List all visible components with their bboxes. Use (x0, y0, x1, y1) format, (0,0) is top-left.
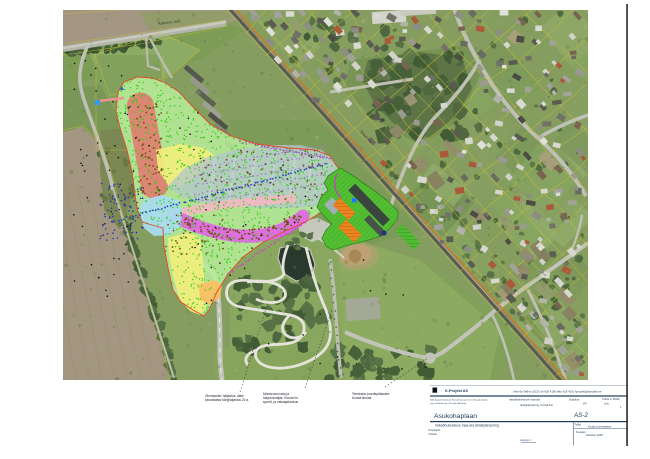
svg-text:AS-2: AS-2 (573, 412, 588, 419)
svg-text:Ahtri 6a Tallinn 10151 tel 62: Ahtri 6a Tallinn 10151 tel 626 4100 faks… (513, 390, 602, 394)
svg-text:Vabaõhukeskuse maa-ala detailp: Vabaõhukeskuse maa-ala detailplaneering (435, 424, 499, 428)
svg-text:Staadium: Staadium (569, 399, 580, 402)
svg-text:DP: DP (583, 403, 587, 406)
svg-text:K-Projekt AS: K-Projekt AS (445, 389, 469, 393)
svg-text:Tellija: Tellija (575, 424, 582, 427)
svg-text:Kunda Linnavalitsus: Kunda Linnavalitsus (588, 425, 612, 429)
svg-text:Vabaõhukeskuse maa-ala: Vabaõhukeskuse maa-ala (509, 398, 540, 402)
svg-text:Asukohaplaan: Asukohaplaan (434, 413, 477, 420)
svg-text:spordi- ja vabaajakeskus: spordi- ja vabaajakeskus (263, 400, 298, 404)
svg-text:Tööde nr 08126: Tööde nr 08126 (602, 398, 620, 401)
svg-text:Leping nr: Leping nr (520, 438, 531, 442)
svg-text:detailplaneering, Kunda linn: detailplaneering, Kunda linn (520, 403, 554, 407)
svg-text:Projektijuht: Projektijuht (429, 429, 441, 432)
svg-text:Leht: Leht (604, 403, 609, 406)
svg-text:kavandatav kõrghaljastus 20 a.: kavandatav kõrghaljastus 20 a. (205, 398, 249, 402)
svg-text:oktoober 2008: oktoober 2008 (586, 433, 603, 437)
svg-text:Kõik õigused kaitstud. Käesole: Kõik õigused kaitstud. Käesolevat joonis… (430, 399, 488, 402)
svg-text:Arhitekt: Arhitekt (429, 433, 437, 436)
svg-text:Kunda linnast: Kunda linnast (352, 396, 371, 400)
svg-text:ega avaldada ilma K-Projekt AS: ega avaldada ilma K-Projekt AS loata. (430, 402, 467, 405)
